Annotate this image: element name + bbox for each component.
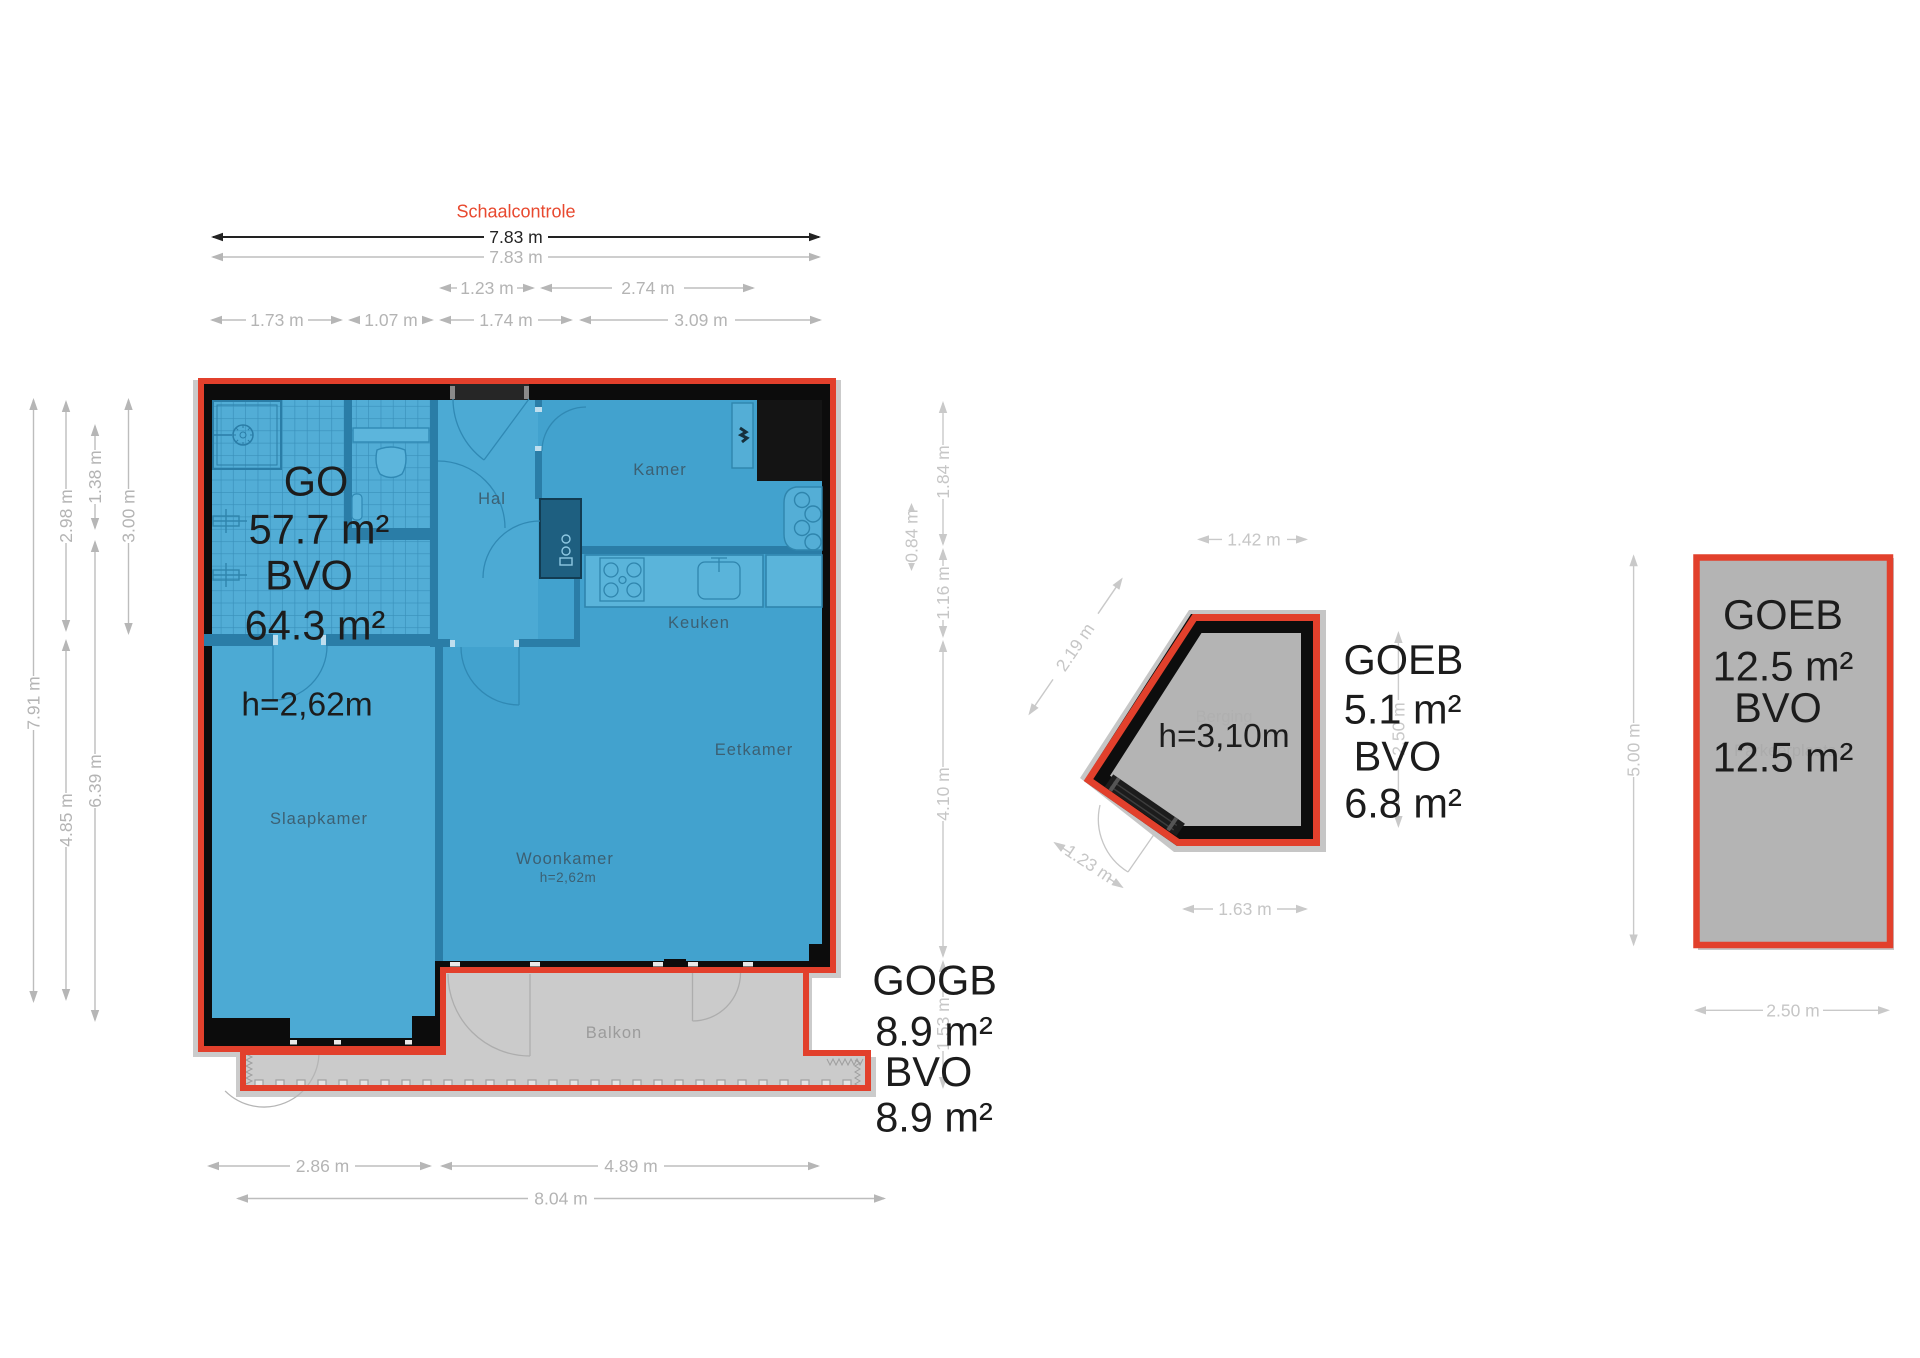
svg-text:2.19 m: 2.19 m <box>1052 619 1099 674</box>
svg-text:Slaapkamer: Slaapkamer <box>270 810 368 828</box>
svg-text:Balkon: Balkon <box>586 1024 642 1042</box>
svg-text:h=2,62m: h=2,62m <box>241 687 372 724</box>
svg-text:4.85 m: 4.85 m <box>56 793 76 847</box>
svg-text:2.86 m: 2.86 m <box>296 1156 350 1176</box>
svg-text:0.84 m: 0.84 m <box>902 509 922 563</box>
svg-text:64.3 m²: 64.3 m² <box>245 601 386 648</box>
svg-text:Schaalcontrole: Schaalcontrole <box>456 202 575 222</box>
svg-text:1.16 m: 1.16 m <box>933 566 953 620</box>
svg-text:GOEB: GOEB <box>1343 636 1463 683</box>
svg-text:Eetkamer: Eetkamer <box>715 741 794 759</box>
svg-text:1.63 m: 1.63 m <box>1218 899 1272 919</box>
svg-text:12.5 m²: 12.5 m² <box>1713 643 1854 690</box>
svg-text:2.74 m: 2.74 m <box>621 278 675 298</box>
svg-text:7.91 m: 7.91 m <box>24 676 44 730</box>
svg-text:2.50 m: 2.50 m <box>1766 1000 1820 1020</box>
svg-text:6.39 m: 6.39 m <box>85 754 105 808</box>
svg-text:12.5 m²: 12.5 m² <box>1713 733 1854 780</box>
svg-text:BVO: BVO <box>265 552 353 599</box>
svg-text:8.04 m: 8.04 m <box>534 1189 588 1209</box>
svg-text:4.89 m: 4.89 m <box>604 1156 658 1176</box>
svg-text:Hal: Hal <box>478 490 506 508</box>
svg-text:Woonkamer: Woonkamer <box>516 850 614 868</box>
svg-text:h=2,62m: h=2,62m <box>540 870 596 885</box>
svg-text:BVO: BVO <box>885 1048 973 1095</box>
svg-text:1.73 m: 1.73 m <box>250 310 304 330</box>
svg-text:1.07 m: 1.07 m <box>364 310 418 330</box>
svg-text:1.23 m: 1.23 m <box>1061 840 1117 886</box>
svg-text:6.8 m²: 6.8 m² <box>1344 779 1462 826</box>
svg-text:Kamer: Kamer <box>633 461 687 479</box>
svg-text:BVO: BVO <box>1734 684 1822 731</box>
svg-text:1.74 m: 1.74 m <box>479 310 533 330</box>
svg-text:1.38 m: 1.38 m <box>85 450 105 504</box>
svg-text:2.98 m: 2.98 m <box>56 489 76 543</box>
svg-text:7.83 m: 7.83 m <box>489 227 543 247</box>
svg-text:7.83 m: 7.83 m <box>489 247 543 267</box>
svg-text:3.00 m: 3.00 m <box>119 489 139 543</box>
svg-text:Keuken: Keuken <box>668 614 730 632</box>
svg-text:57.7 m²: 57.7 m² <box>249 506 390 553</box>
svg-text:4.10 m: 4.10 m <box>933 767 953 821</box>
svg-text:GO: GO <box>284 458 349 505</box>
svg-text:5.1 m²: 5.1 m² <box>1344 685 1462 732</box>
svg-text:h=3,10m: h=3,10m <box>1158 718 1289 755</box>
svg-text:1.84 m: 1.84 m <box>933 445 953 499</box>
svg-text:GOGB: GOGB <box>872 957 997 1004</box>
svg-text:3.09 m: 3.09 m <box>674 310 728 330</box>
svg-text:GOEB: GOEB <box>1723 591 1843 638</box>
svg-text:1.23 m: 1.23 m <box>460 278 514 298</box>
svg-text:BVO: BVO <box>1354 733 1442 780</box>
svg-text:8.9 m²: 8.9 m² <box>875 1094 993 1141</box>
svg-text:5.00 m: 5.00 m <box>1624 723 1644 777</box>
svg-text:1.42 m: 1.42 m <box>1227 529 1281 549</box>
